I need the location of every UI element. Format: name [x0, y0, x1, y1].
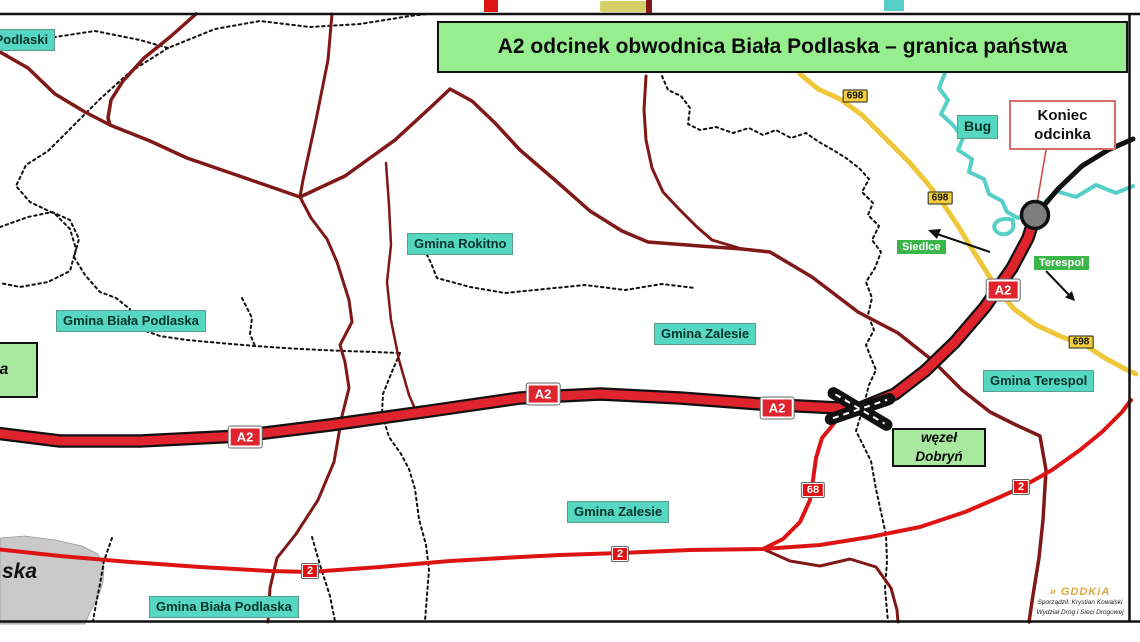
shield-698-1: 698 [843, 90, 868, 103]
shield-a2-1: A2 [229, 427, 262, 448]
shield-a2-4: A2 [987, 280, 1020, 301]
shield-68: 68 [802, 483, 824, 497]
gddkia-logo-icon: » [1050, 586, 1057, 598]
label-gmina-biala-podlaska-1: Gmina Biała Podlaska [56, 310, 206, 332]
koniec-line2: odcinka [1011, 125, 1114, 145]
credit-line-2: Wydział Dróg i Sieci Drogowej [1030, 608, 1130, 618]
label-gmina-zalesie-2: Gmina Zalesie [567, 501, 669, 523]
top-edge-slivers [484, 0, 904, 13]
label-koniec-odcinka: Koniec odcinka [1009, 100, 1116, 150]
shield-a2-2: A2 [527, 384, 560, 405]
label-bug-river: Bug [957, 115, 998, 139]
shield-a2-3: A2 [761, 398, 794, 419]
map-title-text: A2 odcinek obwodnica Biała Podlaska – gr… [498, 35, 1068, 59]
credits-block: » GDDKiA Sporządził: Krystian Kowalski W… [1030, 586, 1130, 618]
koniec-line1: Koniec [1011, 106, 1114, 126]
end-point-marker [1022, 202, 1049, 229]
label-direction-terespol: Terespol [1034, 256, 1089, 270]
border-road [1035, 139, 1133, 216]
shield-698-2: 698 [928, 192, 953, 205]
label-gmina-terespol: Gmina Terespol [983, 370, 1094, 392]
koniec-leader-line [1037, 150, 1046, 203]
label-gmina-biala-podlaska-2: Gmina Biała Podlaska [149, 596, 299, 618]
national-roads [0, 400, 1131, 572]
label-city-fragment: ska [2, 560, 37, 584]
label-gmina-zalesie-1: Gmina Zalesie [654, 323, 756, 345]
wezel-line1: węzeł [894, 429, 984, 447]
label-gmina-janow-podlaski: nów Podlaski [0, 29, 55, 51]
map-title: A2 odcinek obwodnica Biała Podlaska – gr… [437, 21, 1128, 73]
label-wezel-dobryn: węzeł Dobryń [892, 428, 986, 467]
label-direction-siedlce: Siedlce [897, 240, 946, 254]
left-box-text: a [0, 359, 36, 381]
gddkia-logo-text: GDDKiA [1061, 586, 1110, 598]
map-canvas: A2 odcinek obwodnica Biała Podlaska – gr… [0, 0, 1140, 642]
shield-2-1: 2 [302, 564, 318, 578]
shield-2-2: 2 [612, 547, 628, 561]
shield-698-3: 698 [1069, 336, 1094, 349]
shield-2-3: 2 [1013, 480, 1029, 494]
credit-line-1: Sporządził: Krystian Kowalski [1030, 598, 1130, 608]
label-left-edge-box: a [0, 342, 38, 398]
wezel-line2: Dobryń [894, 448, 984, 466]
gddkia-logo: » GDDKiA [1030, 586, 1130, 598]
label-gmina-rokitno: Gmina Rokitno [407, 233, 513, 255]
